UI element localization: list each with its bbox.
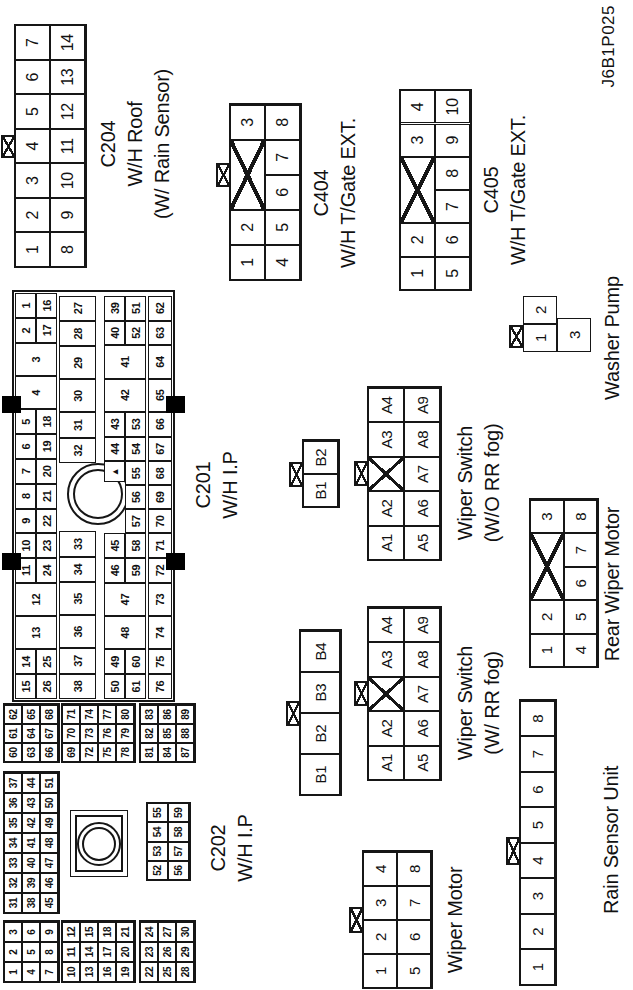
pin-cell: 79 (116, 724, 134, 743)
pin-cell: 25 (158, 962, 176, 982)
pin-cell: 5 (435, 257, 470, 290)
pin-cell: A8 (404, 642, 440, 676)
pin-cell: 3 (530, 500, 564, 533)
pin-cell: 6 (564, 567, 598, 600)
pin-cell: 1 (400, 257, 435, 290)
pin-cell: 2 (15, 318, 36, 343)
connector-label-line: (W/ RR fog) (479, 646, 506, 760)
pin-cell: 69 (148, 485, 172, 509)
pin-cell: A2 (368, 711, 404, 745)
pin-cell: 46 (40, 873, 58, 893)
mount-tab (2, 553, 21, 570)
pin-cell: 9 (50, 198, 85, 233)
pin-cell: 77 (98, 705, 116, 724)
pin-cell: 1 (520, 950, 555, 986)
pin-cell: 61 (125, 674, 146, 699)
pin-cell: 3 (15, 164, 50, 199)
pin-cell: 67 (148, 437, 172, 462)
mount-tab (166, 553, 185, 570)
pin-cell: 66 (40, 743, 58, 762)
pin-cell: 4 (15, 376, 57, 409)
pin-cell: 3 (363, 886, 397, 920)
pin-cell: 5 (265, 210, 300, 245)
pin-cell: 71 (62, 705, 80, 724)
pin-cell: 20 (36, 459, 57, 484)
pin-cell: 54 (147, 822, 168, 841)
pin-cell: 50 (104, 674, 125, 699)
pin-cell: 6 (22, 922, 40, 942)
pin-cell: 2 (400, 223, 435, 256)
pin-cell: 61 (4, 724, 22, 743)
pin-cell: 8 (50, 233, 85, 268)
pin-cell: 75 (148, 649, 172, 674)
connector-label: Rain Sensor Unit (598, 766, 625, 914)
pin-cell: 10 (435, 90, 470, 123)
pin-cell: 5 (15, 409, 36, 434)
pin-cell: 33 (59, 531, 96, 556)
pin-cell: 15 (80, 922, 98, 942)
pin-cell: 49 (104, 649, 125, 674)
pin-cell: 32 (4, 873, 22, 893)
pin-cell: 41 (104, 345, 146, 378)
pin-cell: 38 (22, 893, 40, 913)
pin-cell: 4 (15, 129, 50, 164)
connector-label: Washer Pump (599, 276, 626, 400)
pin-cell: 72 (80, 743, 98, 762)
pin-cell: 44 (104, 437, 125, 462)
connector-label-line: Wiper Switch (452, 424, 479, 543)
pin-cell: 6 (15, 434, 36, 459)
connector-label-line: C201 (190, 451, 217, 519)
pin-cell: 49 (40, 813, 58, 833)
pin-cell: 47 (104, 583, 146, 616)
pin-cell: 82 (140, 724, 158, 743)
pin-cell: 1 (523, 324, 557, 352)
pin-cell: 4 (363, 852, 397, 886)
pin-cell: 51 (40, 773, 58, 793)
pin-cell: B1 (303, 474, 338, 507)
pin-cell: 63 (148, 321, 172, 346)
pin-cell: A1 (368, 526, 404, 560)
pin-cell: 73 (148, 583, 172, 616)
pin-cell: 60 (125, 649, 146, 674)
connector-label-line: Washer Pump (599, 276, 626, 400)
pin-cell: 88 (176, 724, 194, 743)
pin-cell: 66 (148, 412, 172, 437)
pin-cell: 84 (158, 743, 176, 762)
pin-cell: 74 (80, 705, 98, 724)
connector-label: Wiper Motor (442, 867, 469, 974)
pin-cell: A4 (368, 608, 404, 642)
pin-cell: 50 (40, 793, 58, 813)
connector-label-line: Rain Sensor Unit (598, 766, 625, 914)
pin-cell: 6 (520, 772, 555, 808)
pin-cell: 1 (530, 634, 564, 667)
pin-cell: 89 (176, 705, 194, 724)
pin-cell: 56 (168, 861, 189, 880)
pin-cell: 42 (22, 813, 40, 833)
connector-label-line: (W/O RR fog) (479, 424, 506, 543)
connector-label-line: C204 (95, 69, 122, 219)
clip-tab-icon (286, 701, 301, 726)
pin-cell: 75 (98, 743, 116, 762)
pin-cell: 69 (62, 743, 80, 762)
pin-cell: 28 (176, 962, 194, 982)
pin-cell: 19 (36, 434, 57, 459)
pin-cell: 86 (158, 705, 176, 724)
pin-cell: 41 (22, 833, 40, 853)
pin-cell: 24 (36, 558, 57, 583)
mount-tab (2, 396, 21, 413)
pin-cell: 67 (40, 724, 58, 743)
pin-cell: 1 (4, 962, 22, 982)
pin-cell: 80 (116, 705, 134, 724)
pin-cell: 37 (59, 648, 96, 673)
clip-tab-icon (354, 681, 369, 706)
pin-cell: 59 (125, 558, 146, 583)
connector-label-line: C405 (478, 115, 505, 265)
pin-cell: 4 (520, 843, 555, 879)
pin-cell: 43 (104, 412, 125, 437)
pin-cell: 22 (36, 509, 57, 534)
manual-page: 1234567891011121314C204W/H Roof(W/ Rain … (0, 0, 633, 990)
pin-cell: 13 (15, 616, 57, 649)
pin-cell: 6 (435, 223, 470, 256)
pin-cell: B2 (303, 441, 338, 474)
pin-cell: 65 (22, 705, 40, 724)
connector-label-line: W/H I.P (232, 814, 259, 882)
pin-cell: 13 (50, 60, 85, 95)
pin-cell: 10 (62, 962, 80, 982)
pin-cell: 21 (36, 484, 57, 509)
pin-cell: 18 (36, 409, 57, 434)
pin-cell: 87 (176, 743, 194, 762)
pin-cell: A4 (368, 388, 404, 422)
pin-cell: B1 (300, 754, 340, 795)
pin-cell: 16 (36, 293, 57, 318)
clip-tab-icon (349, 907, 364, 933)
pin-cell: 40 (22, 853, 40, 873)
pin-cell: 57 (125, 509, 146, 533)
pin-cell: 17 (98, 942, 116, 962)
pin-cell: 64 (22, 724, 40, 743)
connector-label-line: W/H T/Gate EXT. (505, 115, 532, 265)
pin-cell: 46 (104, 558, 125, 583)
pin-cell: 1 (15, 293, 36, 318)
pin-cell: 23 (140, 942, 158, 962)
pin-cell: 62 (4, 705, 22, 724)
pin-cell: 2 (15, 198, 50, 233)
pin-cell: 8 (15, 484, 36, 509)
pin-cell: 12 (50, 95, 85, 130)
pin-cell: 45 (104, 533, 125, 558)
connector-label-line: Wiper Motor (442, 867, 469, 974)
connector-label: Wiper Switch(W/ RR fog) (452, 646, 506, 760)
pin-cell: 31 (59, 413, 96, 438)
diagram-canvas: 1234567891011121314C204W/H Roof(W/ Rain … (0, 0, 633, 990)
pin-cell: 36 (59, 615, 96, 648)
pin-cell: 81 (140, 743, 158, 762)
pin-cell: 70 (148, 509, 172, 533)
pin-cell: 62 (148, 296, 172, 321)
pin-cell: 53 (125, 412, 146, 437)
pin-cell: 7 (520, 737, 555, 773)
pin-cell: 7 (15, 26, 50, 61)
pin-cell: 26 (158, 942, 176, 962)
pin-cell: 35 (59, 582, 96, 615)
pin-cell: 7 (265, 140, 300, 175)
keyway-cell (400, 157, 435, 224)
pin-cell: 35 (4, 813, 22, 833)
pin-cell: 59 (168, 803, 189, 822)
pin-cell: 58 (168, 822, 189, 841)
pin-cell: 42 (104, 379, 146, 412)
pin-cell: A5 (404, 526, 440, 560)
pin-cell: 29 (59, 346, 96, 379)
pin-cell: 2 (523, 296, 557, 324)
pin-cell: A9 (404, 608, 440, 642)
pin-cell: 45 (40, 893, 58, 913)
pin-cell: 54 (125, 437, 146, 462)
pin-cell: B2 (300, 713, 340, 754)
pin-cell: 14 (50, 26, 85, 61)
pin-cell: 8 (435, 157, 470, 190)
pin-cell: 2 (230, 210, 265, 245)
pin-cell: 73 (80, 724, 98, 743)
pin-cell: A6 (404, 491, 440, 525)
pin-cell: 18 (98, 922, 116, 942)
pin-cell: 8 (564, 500, 598, 533)
pin-cell: 52 (147, 861, 168, 880)
pin-cell: 60 (4, 743, 22, 762)
pin-cell: 48 (40, 833, 58, 853)
connector-label: C405W/H T/Gate EXT. (478, 115, 532, 265)
pin-cell: 3 (520, 879, 555, 915)
keyway-cell (230, 140, 265, 210)
pin-cell: 3 (4, 922, 22, 942)
pin-cell: 7 (564, 533, 598, 566)
pin-cell: 32 (59, 438, 96, 463)
pin-cell: 47 (40, 853, 58, 873)
pin-cell: 10 (50, 164, 85, 199)
clip-tab-icon (509, 325, 524, 348)
clip-tab-icon (1, 135, 16, 158)
pin-cell: 11 (50, 129, 85, 164)
pin-cell: 7 (397, 886, 431, 920)
pin-cell: 55 (147, 803, 168, 822)
pin-cell: 34 (59, 557, 96, 582)
pin-cell: A7 (404, 457, 440, 491)
connector-label: C202W/H I.P (205, 814, 259, 882)
pin-cell: 70 (62, 724, 80, 743)
pin-cell: 31 (4, 893, 22, 913)
pin-cell: 1 (15, 233, 50, 268)
connector-label-line: W/H I.P (217, 451, 244, 519)
pin-cell: 30 (59, 379, 96, 412)
mount-tab (166, 396, 185, 413)
connector-label: C204W/H Roof(W/ Rain Sensor) (95, 69, 176, 219)
pin-cell: 19 (116, 962, 134, 982)
pin-cell: 8 (397, 852, 431, 886)
pin-cell: 63 (22, 743, 40, 762)
connector-label-line: W/H T/Gate EXT. (335, 118, 362, 268)
page-code: J6B1P025 (599, 5, 619, 205)
pin-cell: A2 (368, 491, 404, 525)
pin-cell: A1 (368, 746, 404, 780)
pin-cell: 85 (158, 724, 176, 743)
pin-cell: 37 (4, 773, 22, 793)
pin-cell: 44 (22, 773, 40, 793)
pin-cell: A6 (404, 711, 440, 745)
connector-label-line: C404 (308, 118, 335, 268)
pin-cell: 9 (15, 509, 36, 534)
pin-cell: 64 (148, 345, 172, 378)
pin-cell: 12 (15, 583, 57, 616)
pin-cell: 5 (15, 95, 50, 130)
pin-cell: 2 (363, 920, 397, 954)
pin-cell: 2 (530, 600, 564, 633)
pin-cell: 8 (40, 942, 58, 962)
pin-cell: 38 (59, 674, 96, 699)
pin-cell: 30 (176, 922, 194, 942)
pin-cell: 36 (4, 793, 22, 813)
pin-cell: 25 (36, 649, 57, 674)
pin-cell: 39 (104, 296, 125, 321)
pin-cell: 16 (98, 962, 116, 982)
pin-cell: A3 (368, 642, 404, 676)
connector-label: Rear Wiper Motor (599, 507, 626, 662)
pin-cell: B3 (300, 672, 340, 713)
pin-cell: 4 (564, 634, 598, 667)
pin-cell: 13 (80, 962, 98, 982)
pin-cell: 3 (400, 124, 435, 157)
pin-cell: 3 (15, 343, 57, 376)
pin-cell: 14 (80, 942, 98, 962)
connector-label: Wiper Switch(W/O RR fog) (452, 424, 506, 543)
clip-tab-icon (506, 837, 521, 865)
pin-cell: 55 (125, 461, 146, 485)
pin-cell: 5 (397, 954, 431, 988)
pin-cell: 4 (400, 90, 435, 123)
pin-cell: 78 (116, 743, 134, 762)
keyway-cell (530, 533, 564, 600)
clip-tab-icon (289, 462, 304, 487)
keyway-cell (368, 677, 404, 711)
pin-cell: 2 (4, 942, 22, 962)
pin-cell: 29 (176, 942, 194, 962)
pin-cell: 20 (116, 942, 134, 962)
pin-cell: B4 (300, 631, 340, 672)
clip-tab-icon (216, 163, 231, 187)
pin-cell: 14 (15, 649, 36, 674)
pin-cell: 58 (125, 533, 146, 558)
pin-cell: 48 (104, 616, 146, 649)
pin-cell: 56 (125, 485, 146, 509)
pin-cell: 43 (22, 793, 40, 813)
pin-cell: 52 (125, 321, 146, 346)
pin-cell: 51 (125, 296, 146, 321)
pin-cell: 17 (36, 318, 57, 343)
pin-cell: 3 (230, 105, 265, 140)
connector-label-line: C202 (205, 814, 232, 882)
pin-cell: 24 (140, 922, 158, 942)
pin-cell: 7 (15, 459, 36, 484)
connector-label-line: (W/ Rain Sensor) (149, 69, 176, 219)
pin-cell: 8 (520, 701, 555, 737)
pin-cell: 11 (62, 942, 80, 962)
pin-cell: 2 (520, 914, 555, 950)
clip-tab-icon (354, 461, 369, 486)
pin-cell: 6 (265, 175, 300, 210)
pin-cell: 8 (265, 105, 300, 140)
pin-cell: 5 (564, 600, 598, 633)
pin-cell: A8 (404, 422, 440, 456)
pin-cell: A3 (368, 422, 404, 456)
pin-cell: 27 (59, 296, 96, 321)
pin-cell: 28 (59, 321, 96, 346)
pin-cell: 33 (4, 853, 22, 873)
orientation-marker-icon: ▲ (104, 461, 125, 482)
pin-cell: 6 (15, 60, 50, 95)
pin-cell: 74 (148, 616, 172, 649)
pin-cell: 40 (104, 321, 125, 346)
pin-cell: 6 (397, 920, 431, 954)
pin-cell: 1 (363, 954, 397, 988)
pin-cell: 5 (520, 808, 555, 844)
pin-cell: 57 (168, 842, 189, 861)
pin-cell: 68 (148, 461, 172, 485)
pin-cell: 21 (116, 922, 134, 942)
pin-cell: 15 (15, 674, 36, 699)
connector-label: C201W/H I.P (190, 451, 244, 519)
pin-cell: 12 (62, 922, 80, 942)
pin-cell: 39 (22, 873, 40, 893)
pin-cell: 83 (140, 705, 158, 724)
pin-cell: 4 (22, 962, 40, 982)
pin-cell: A9 (404, 388, 440, 422)
pin-cell: A7 (404, 677, 440, 711)
connector-label: C404W/H T/Gate EXT. (308, 118, 362, 268)
pin-cell: 5 (22, 942, 40, 962)
pin-cell: 3 (557, 318, 591, 352)
pin-cell: 76 (148, 674, 172, 699)
pin-cell: 7 (40, 962, 58, 982)
pin-cell: 1 (230, 245, 265, 280)
pin-cell: 7 (435, 190, 470, 223)
bolt-hole-ring (82, 827, 116, 861)
pin-cell: 4 (265, 245, 300, 280)
pin-cell: 9 (435, 124, 470, 157)
pin-cell: 9 (40, 922, 58, 942)
pin-cell: 22 (140, 962, 158, 982)
pin-cell: A5 (404, 746, 440, 780)
pin-cell: 26 (36, 674, 57, 699)
pin-cell: 76 (98, 724, 116, 743)
pin-cell: 68 (40, 705, 58, 724)
connector-label-line: W/H Roof (122, 69, 149, 219)
pin-cell: 23 (36, 533, 57, 558)
pin-cell: 34 (4, 833, 22, 853)
keyway-cell (368, 457, 404, 491)
connector-label-line: Wiper Switch (452, 646, 479, 760)
pin-cell: 27 (158, 922, 176, 942)
pin-cell: 53 (147, 842, 168, 861)
connector-label-line: Rear Wiper Motor (599, 507, 626, 662)
